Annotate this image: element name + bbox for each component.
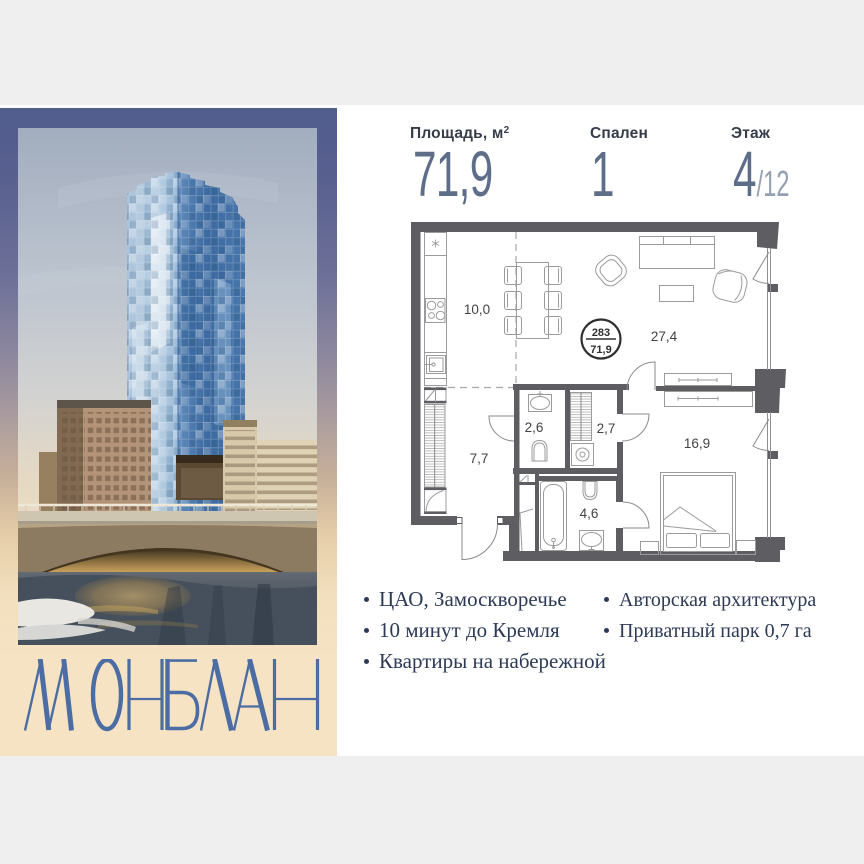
svg-text:4,6: 4,6 bbox=[580, 506, 599, 521]
svg-text:283: 283 bbox=[592, 327, 610, 339]
svg-text:2,6: 2,6 bbox=[525, 420, 544, 435]
svg-text:2,7: 2,7 bbox=[597, 421, 616, 436]
svg-text:10,0: 10,0 bbox=[464, 302, 490, 317]
svg-text:27,4: 27,4 bbox=[651, 329, 678, 344]
svg-text:7,7: 7,7 bbox=[470, 451, 489, 466]
svg-text:71,9: 71,9 bbox=[590, 344, 611, 356]
svg-text:16,9: 16,9 bbox=[684, 436, 710, 451]
